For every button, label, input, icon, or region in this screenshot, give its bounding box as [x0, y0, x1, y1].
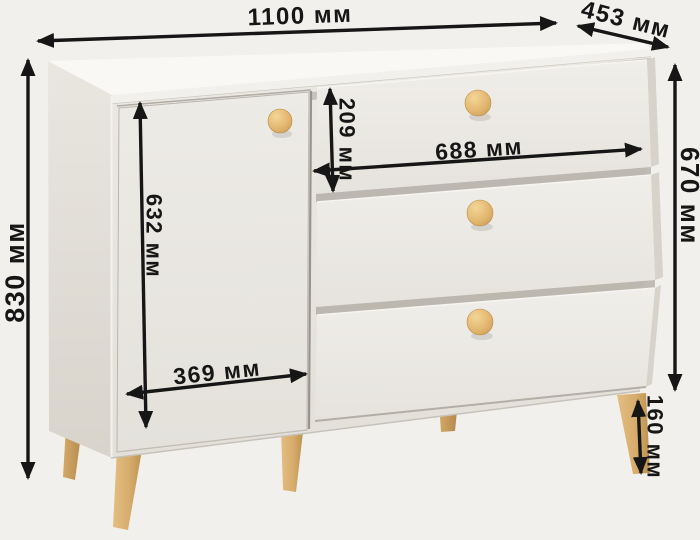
- furniture-dimension-diagram: 1100 мм 453 мм 830 мм 670 мм 160 мм 209 …: [0, 0, 700, 540]
- body-height-label: 670 мм: [675, 147, 700, 245]
- cabinet-left-side-panel: [48, 61, 112, 458]
- door-knob: [268, 109, 292, 133]
- drawer-2-knob: [467, 200, 493, 226]
- door-height-label: 632 мм: [142, 194, 167, 278]
- drawer-3-knob: [467, 309, 493, 335]
- cabinet-drawers: [315, 57, 663, 421]
- drawer-1-knob: [465, 90, 491, 116]
- top-drawer-height-label: 209 мм: [335, 98, 360, 182]
- leg-height-label: 160 мм: [643, 395, 668, 479]
- overall-width-label: 1100 мм: [247, 1, 353, 32]
- overall-height-label: 830 мм: [0, 221, 30, 323]
